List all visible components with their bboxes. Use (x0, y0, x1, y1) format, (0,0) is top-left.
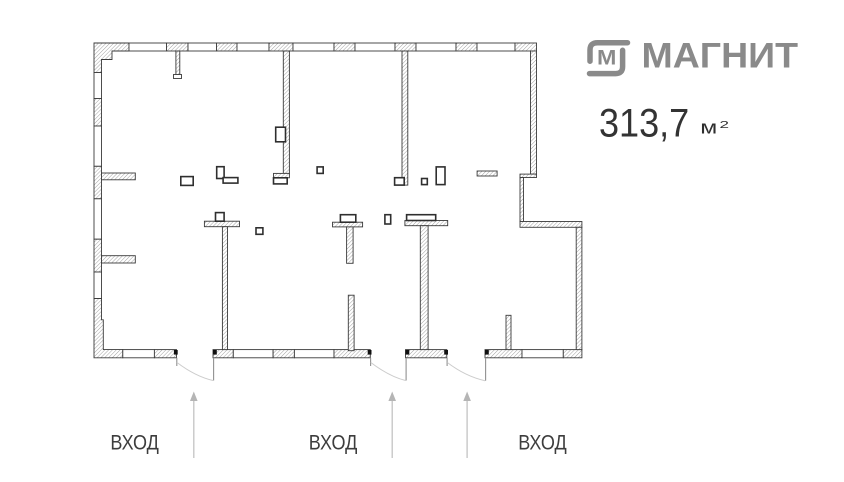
svg-text:М: М (597, 47, 616, 70)
svg-text:ВХОД: ВХОД (110, 432, 158, 455)
svg-text:ВХОД: ВХОД (518, 432, 567, 455)
svg-text:313,7: 313,7 (599, 101, 689, 146)
svg-text:м: м (700, 117, 717, 137)
svg-text:2: 2 (720, 119, 730, 131)
svg-text:ВХОД: ВХОД (309, 432, 358, 455)
svg-text:МАГНИТ: МАГНИТ (642, 37, 799, 76)
